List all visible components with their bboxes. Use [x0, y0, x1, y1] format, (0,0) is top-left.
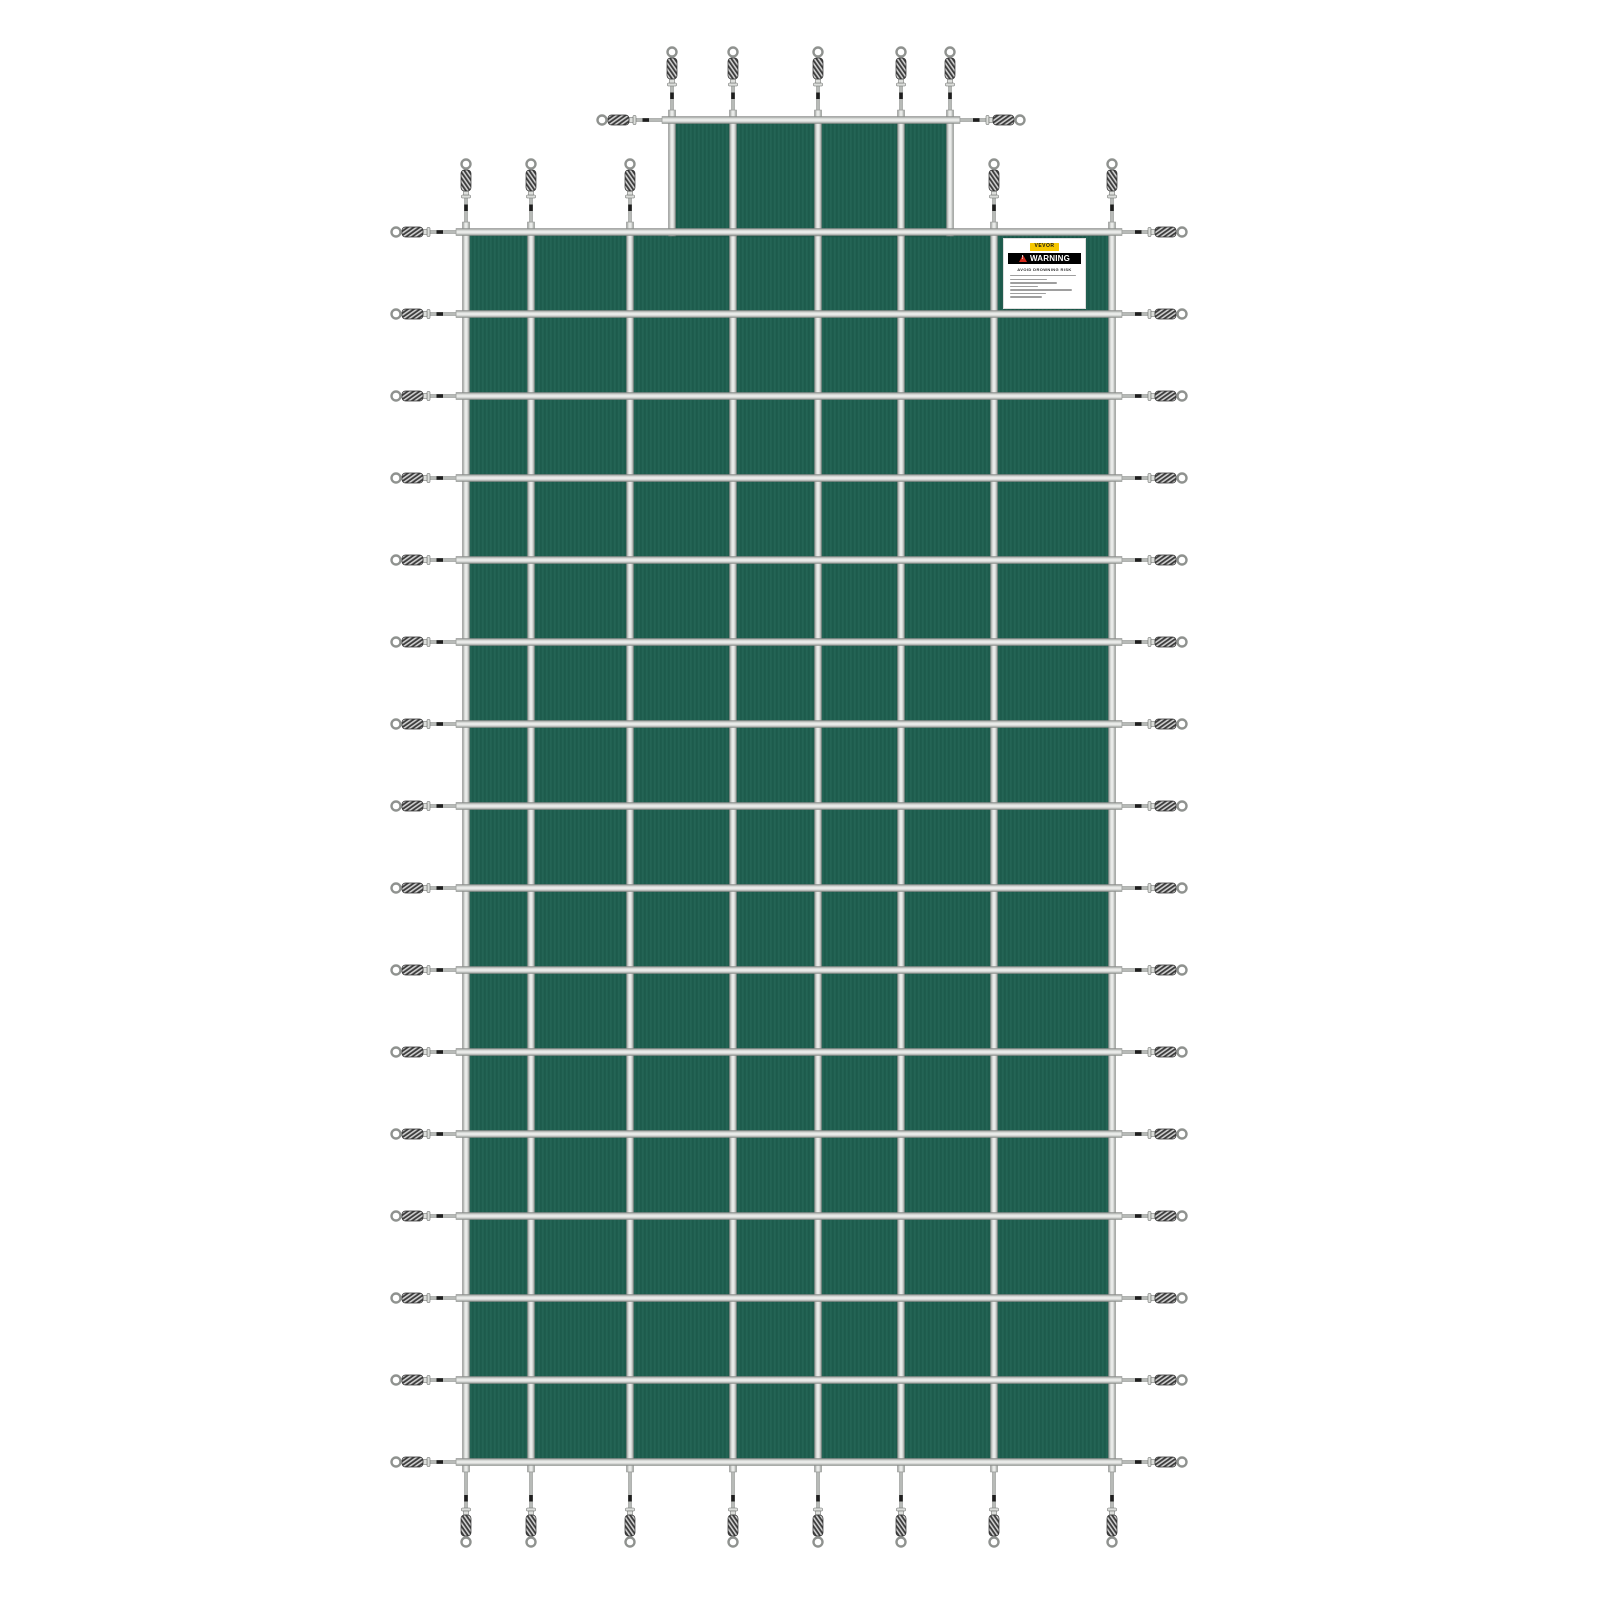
spring-anchor — [625, 160, 635, 223]
warning-header: WARNING — [1008, 253, 1081, 264]
spring-anchor — [392, 1457, 457, 1467]
horizontal-strap — [456, 803, 1122, 810]
horizontal-strap — [456, 1295, 1122, 1302]
spring-anchor — [392, 719, 457, 729]
horizontal-strap — [456, 475, 1122, 482]
vertical-strap — [898, 232, 905, 1472]
spring-anchor — [1122, 637, 1187, 647]
step-vertical-strap — [669, 110, 676, 236]
spring-anchor — [1122, 391, 1187, 401]
vertical-strap — [815, 232, 822, 1472]
step-vertical-strap — [815, 110, 822, 236]
spring-anchor — [989, 1472, 999, 1547]
spring-anchor — [392, 391, 457, 401]
horizontal-strap — [456, 393, 1122, 400]
horizontal-strap — [456, 1459, 1122, 1466]
step-vertical-strap — [730, 110, 737, 236]
vertical-strap — [730, 232, 737, 1472]
spring-anchor — [728, 1472, 738, 1547]
horizontal-strap — [456, 1131, 1122, 1138]
spring-anchor — [728, 48, 738, 111]
warning-label: VEVOR WARNING AVOID DROWNING RISK — [1003, 238, 1086, 309]
spring-anchor — [960, 115, 1025, 125]
spring-anchor — [1107, 1472, 1117, 1547]
fine-print-line — [1010, 296, 1042, 297]
step-vertical-strap — [898, 110, 905, 236]
step-top-strap — [662, 117, 960, 124]
pool-cover-graphic — [0, 0, 1600, 1600]
spring-anchor — [1122, 1457, 1187, 1467]
fine-print-line — [1010, 275, 1076, 276]
vertical-strap — [627, 222, 634, 1472]
fine-print-line — [1010, 279, 1047, 280]
spring-anchor — [392, 883, 457, 893]
warning-subtitle: AVOID DROWNING RISK — [1017, 267, 1071, 272]
spring-anchor — [526, 160, 536, 223]
spring-anchor — [461, 1472, 471, 1547]
spring-anchor — [1122, 473, 1187, 483]
spring-anchor — [1122, 227, 1187, 237]
fine-print-line — [1010, 289, 1072, 290]
spring-anchor — [392, 637, 457, 647]
spring-anchor — [392, 801, 457, 811]
vertical-strap — [991, 222, 998, 1472]
spring-anchor — [392, 227, 457, 237]
spring-anchor — [1122, 1293, 1187, 1303]
spring-anchor — [667, 48, 677, 111]
spring-anchor — [392, 473, 457, 483]
spring-anchor — [1122, 1047, 1187, 1057]
spring-anchor — [392, 309, 457, 319]
horizontal-strap — [456, 229, 1122, 236]
horizontal-strap — [456, 639, 1122, 646]
warning-title: WARNING — [1030, 254, 1070, 263]
cover-fabric — [466, 120, 1112, 1462]
spring-anchor — [1122, 965, 1187, 975]
spring-anchor — [392, 1047, 457, 1057]
spring-anchor — [1122, 309, 1187, 319]
vertical-strap — [528, 222, 535, 1472]
spring-anchor — [813, 1472, 823, 1547]
horizontal-strap — [456, 311, 1122, 318]
spring-anchor — [461, 160, 471, 223]
spring-anchor — [896, 48, 906, 111]
spring-anchor — [625, 1472, 635, 1547]
fine-print-line — [1010, 282, 1057, 283]
spring-anchor — [1122, 1211, 1187, 1221]
horizontal-strap — [456, 1049, 1122, 1056]
vertical-strap — [1109, 222, 1116, 1472]
spring-anchor — [1122, 883, 1187, 893]
horizontal-strap — [456, 1377, 1122, 1384]
step-vertical-strap — [947, 110, 954, 236]
spring-anchor — [392, 1375, 457, 1385]
spring-anchor — [392, 1129, 457, 1139]
spring-anchor — [392, 965, 457, 975]
spring-anchor — [989, 160, 999, 223]
horizontal-strap — [456, 967, 1122, 974]
warning-fine-print — [1010, 275, 1079, 298]
spring-anchor — [1122, 719, 1187, 729]
spring-anchor — [392, 555, 457, 565]
vevor-logo: VEVOR — [1030, 243, 1058, 251]
fine-print-line — [1010, 293, 1046, 294]
spring-anchor — [945, 48, 955, 111]
spring-anchor — [896, 1472, 906, 1547]
horizontal-strap — [456, 1213, 1122, 1220]
spring-anchor — [1107, 160, 1117, 223]
warning-triangle-icon — [1019, 255, 1027, 262]
spring-anchor — [392, 1211, 457, 1221]
spring-anchor — [1122, 1375, 1187, 1385]
spring-anchor — [1122, 801, 1187, 811]
spring-anchor — [598, 115, 663, 125]
horizontal-strap — [456, 557, 1122, 564]
product-image-canvas: VEVOR WARNING AVOID DROWNING RISK — [0, 0, 1600, 1600]
spring-anchor — [1122, 555, 1187, 565]
horizontal-strap — [456, 721, 1122, 728]
horizontal-strap — [456, 885, 1122, 892]
spring-anchor — [526, 1472, 536, 1547]
spring-anchor — [1122, 1129, 1187, 1139]
fine-print-line — [1010, 286, 1037, 287]
spring-anchor — [392, 1293, 457, 1303]
spring-anchor — [813, 48, 823, 111]
vertical-strap — [463, 222, 470, 1472]
